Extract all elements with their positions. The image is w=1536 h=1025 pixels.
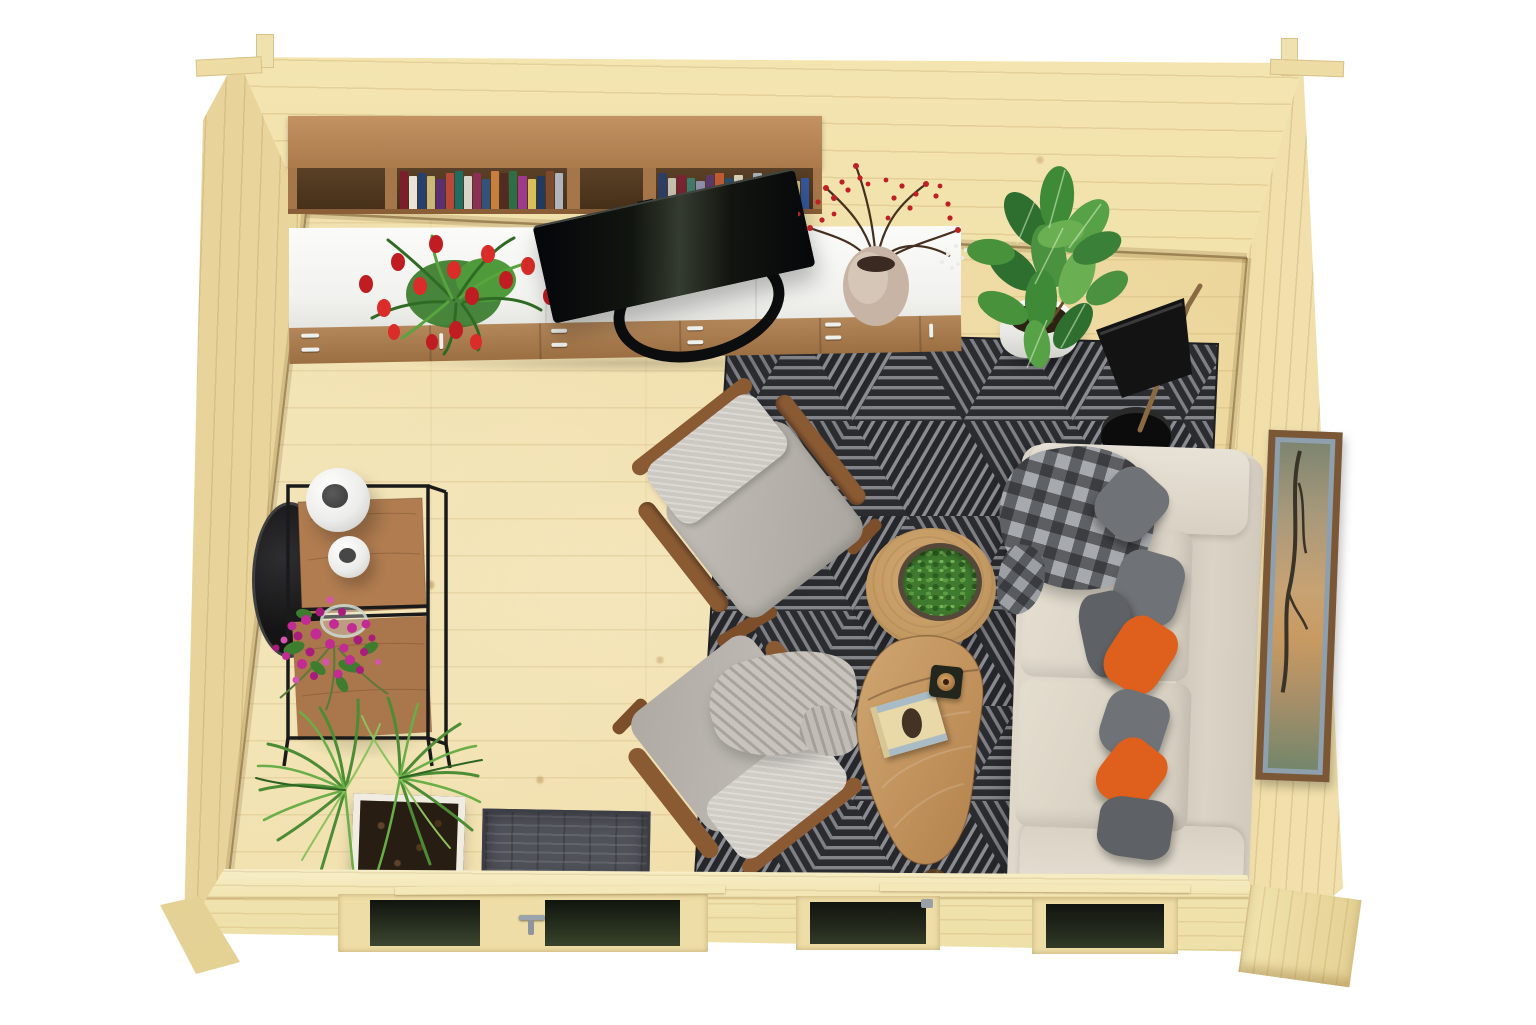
picture-frame: [1255, 430, 1342, 783]
vase-opening: [339, 548, 356, 563]
drawer-handle: [301, 333, 319, 337]
book-rabbit-art: [900, 707, 923, 739]
shelf-divider: [567, 168, 580, 210]
book-spine: [546, 171, 554, 209]
book-spine: [555, 173, 563, 209]
book-spine: [436, 179, 444, 209]
book-row-left: [400, 171, 564, 209]
cabin-top-view-scene: [0, 0, 1536, 1025]
front-wall-corner-right: [1238, 885, 1361, 988]
shelf-divider: [385, 168, 397, 210]
door-glass-left: [370, 900, 480, 946]
kidney-coffee-table: [838, 628, 998, 888]
window-glass-left: [810, 902, 926, 944]
book-spine: [509, 171, 517, 209]
book-spine: [482, 179, 490, 209]
book-spine: [491, 171, 499, 209]
plant-bowl: [898, 543, 982, 621]
lintel-strip-left: [395, 885, 725, 895]
door-glass-right: [545, 900, 680, 946]
window-glass-right: [1046, 904, 1164, 948]
white-vase-small: [328, 536, 370, 578]
book-spine: [537, 176, 545, 209]
book-spine: [409, 176, 417, 209]
window-latch: [921, 899, 933, 908]
drawer-handle: [301, 347, 319, 351]
white-vase-large: [306, 468, 370, 532]
book-spine: [446, 173, 454, 209]
book-spine: [464, 176, 472, 209]
book-spine: [400, 171, 408, 209]
lintel-strip-right: [880, 883, 1190, 893]
vase-opening: [322, 484, 348, 508]
candle-holder: [928, 664, 963, 699]
book-spine: [418, 173, 426, 209]
fan-palm: [250, 680, 485, 890]
shelf-divider: [288, 168, 297, 210]
book-spine: [473, 173, 481, 209]
book-spine: [518, 176, 526, 209]
book-spine: [427, 176, 435, 209]
book-spine: [528, 179, 536, 209]
book-spine: [500, 173, 508, 209]
book-spine: [455, 171, 463, 209]
bookshelf-top: [288, 116, 822, 169]
door-handle-knob: [528, 920, 534, 935]
